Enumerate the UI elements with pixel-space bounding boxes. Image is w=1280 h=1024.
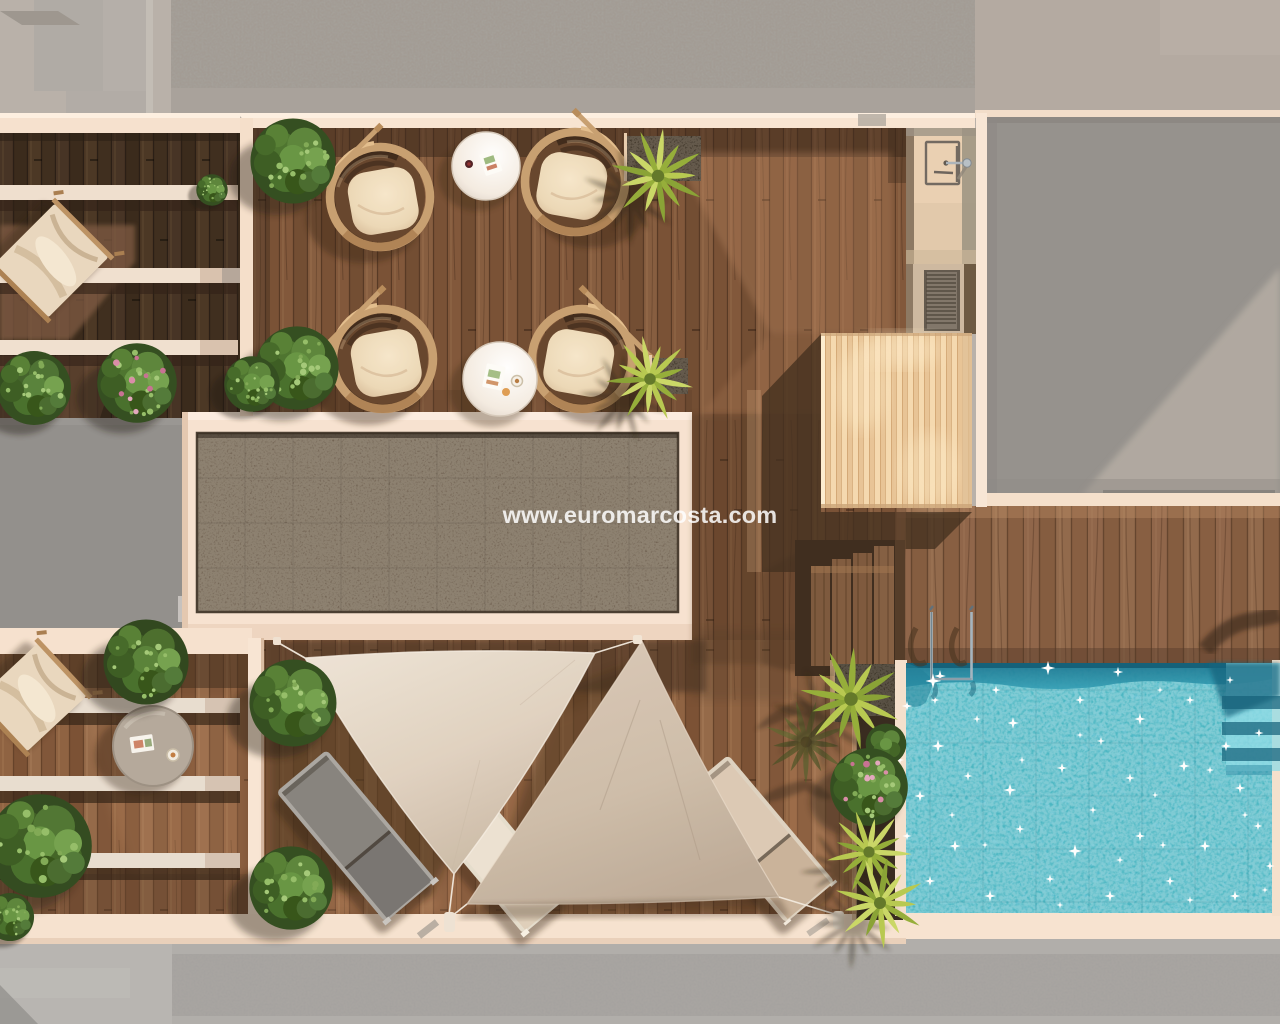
svg-text:www.euromarcosta.com: www.euromarcosta.com	[502, 502, 778, 528]
